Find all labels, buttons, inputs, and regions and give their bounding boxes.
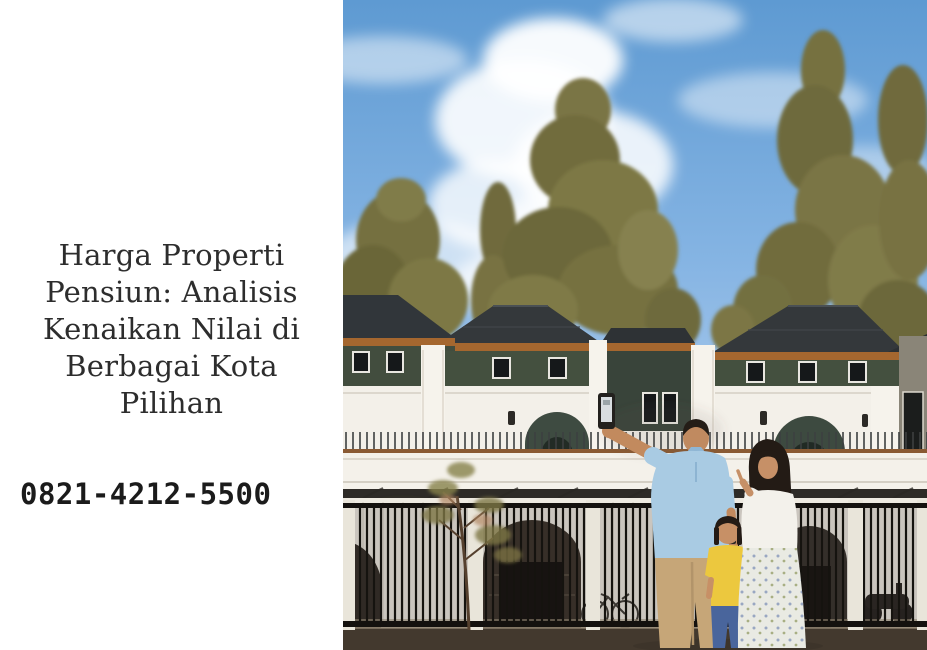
- content-panel: Harga Properti Pensiun: Analisis Kenaika…: [0, 0, 343, 650]
- roof-middle: [601, 328, 695, 343]
- smartphone: [598, 393, 615, 429]
- page-title: Harga Properti Pensiun: Analisis Kenaika…: [0, 237, 343, 422]
- title-line: Harga Properti: [0, 237, 343, 274]
- title-line: Pilihan: [0, 385, 343, 422]
- title-line: Berbagai Kota: [0, 348, 343, 385]
- phone-number: 0821-4212-5500: [20, 477, 271, 511]
- title-line: Pensiun: Analisis: [0, 274, 343, 311]
- mother-face: [758, 455, 778, 479]
- title-line: Kenaikan Nilai di: [0, 311, 343, 348]
- hero-image: [343, 0, 927, 650]
- promo-banner: Harga Properti Pensiun: Analisis Kenaika…: [0, 0, 927, 650]
